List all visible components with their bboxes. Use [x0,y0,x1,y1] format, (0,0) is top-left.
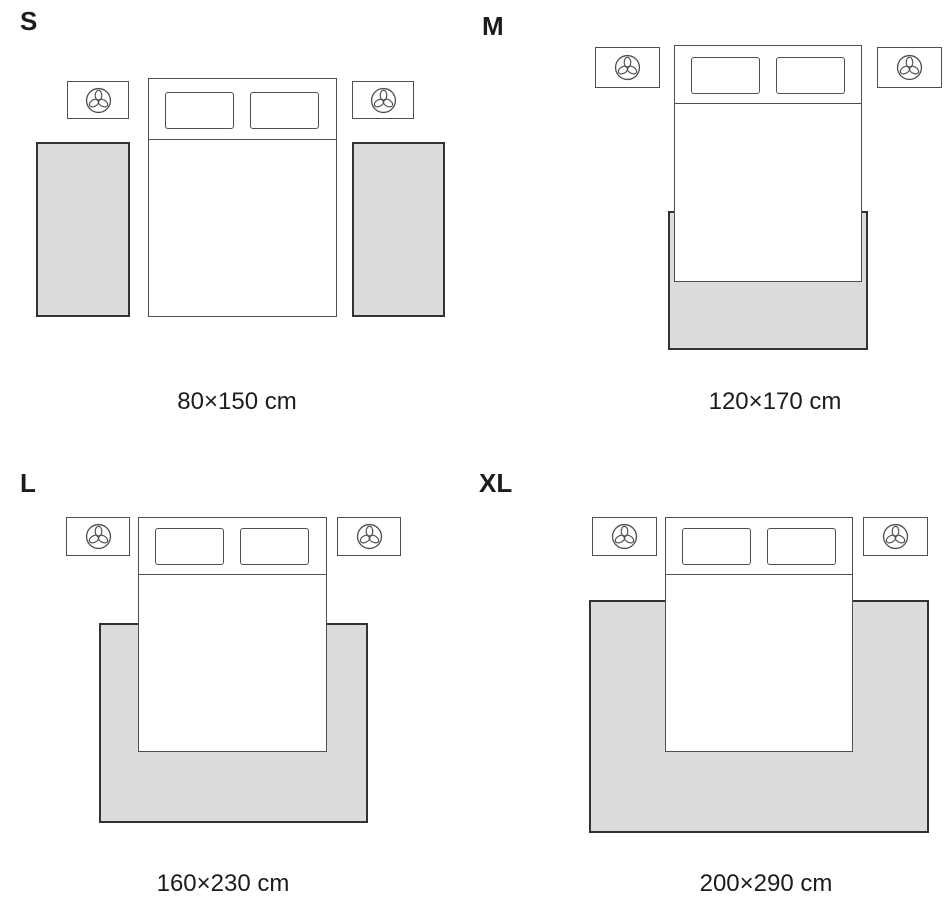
plant-icon [879,520,912,553]
pillow-left [682,528,751,565]
plant-icon [353,520,386,553]
rug-left-runner [36,142,130,317]
bed [674,45,862,282]
pillow-right [776,57,845,94]
size-label: L [20,470,36,496]
nightstand-right [863,517,928,556]
nightstand-right [877,47,942,88]
plant-icon [608,520,641,553]
size-label: M [482,13,504,39]
size-caption: 160×230 cm [23,870,423,898]
plant-icon [82,84,115,117]
size-option-panel-m: M 120×170 cm [475,0,950,450]
nightstand-right [337,517,401,556]
pillow-left [155,528,224,565]
size-option-panel-s: S 80×150 cm [0,0,475,450]
nightstand-left [67,81,129,119]
plant-icon [367,84,400,117]
pillow-right [767,528,836,565]
size-label: XL [479,470,512,496]
bed [138,517,327,752]
nightstand-left [592,517,657,556]
plant-icon [893,51,926,84]
size-label: S [20,8,37,34]
size-caption: 80×150 cm [37,388,437,416]
size-caption: 200×290 cm [566,870,950,898]
pillow-right [240,528,309,565]
pillow-right [250,92,319,129]
nightstand-right [352,81,414,119]
pillow-left [691,57,760,94]
size-caption: 120×170 cm [575,388,950,416]
nightstand-left [66,517,130,556]
size-option-panel-l: L 160×230 cm [0,450,475,900]
bed [665,517,853,752]
bed [148,78,337,317]
pillow-left [165,92,234,129]
rug-right-runner [352,142,445,317]
plant-icon [82,520,115,553]
size-option-panel-xl: XL 200×290 cm [475,450,950,900]
plant-icon [611,51,644,84]
nightstand-left [595,47,660,88]
